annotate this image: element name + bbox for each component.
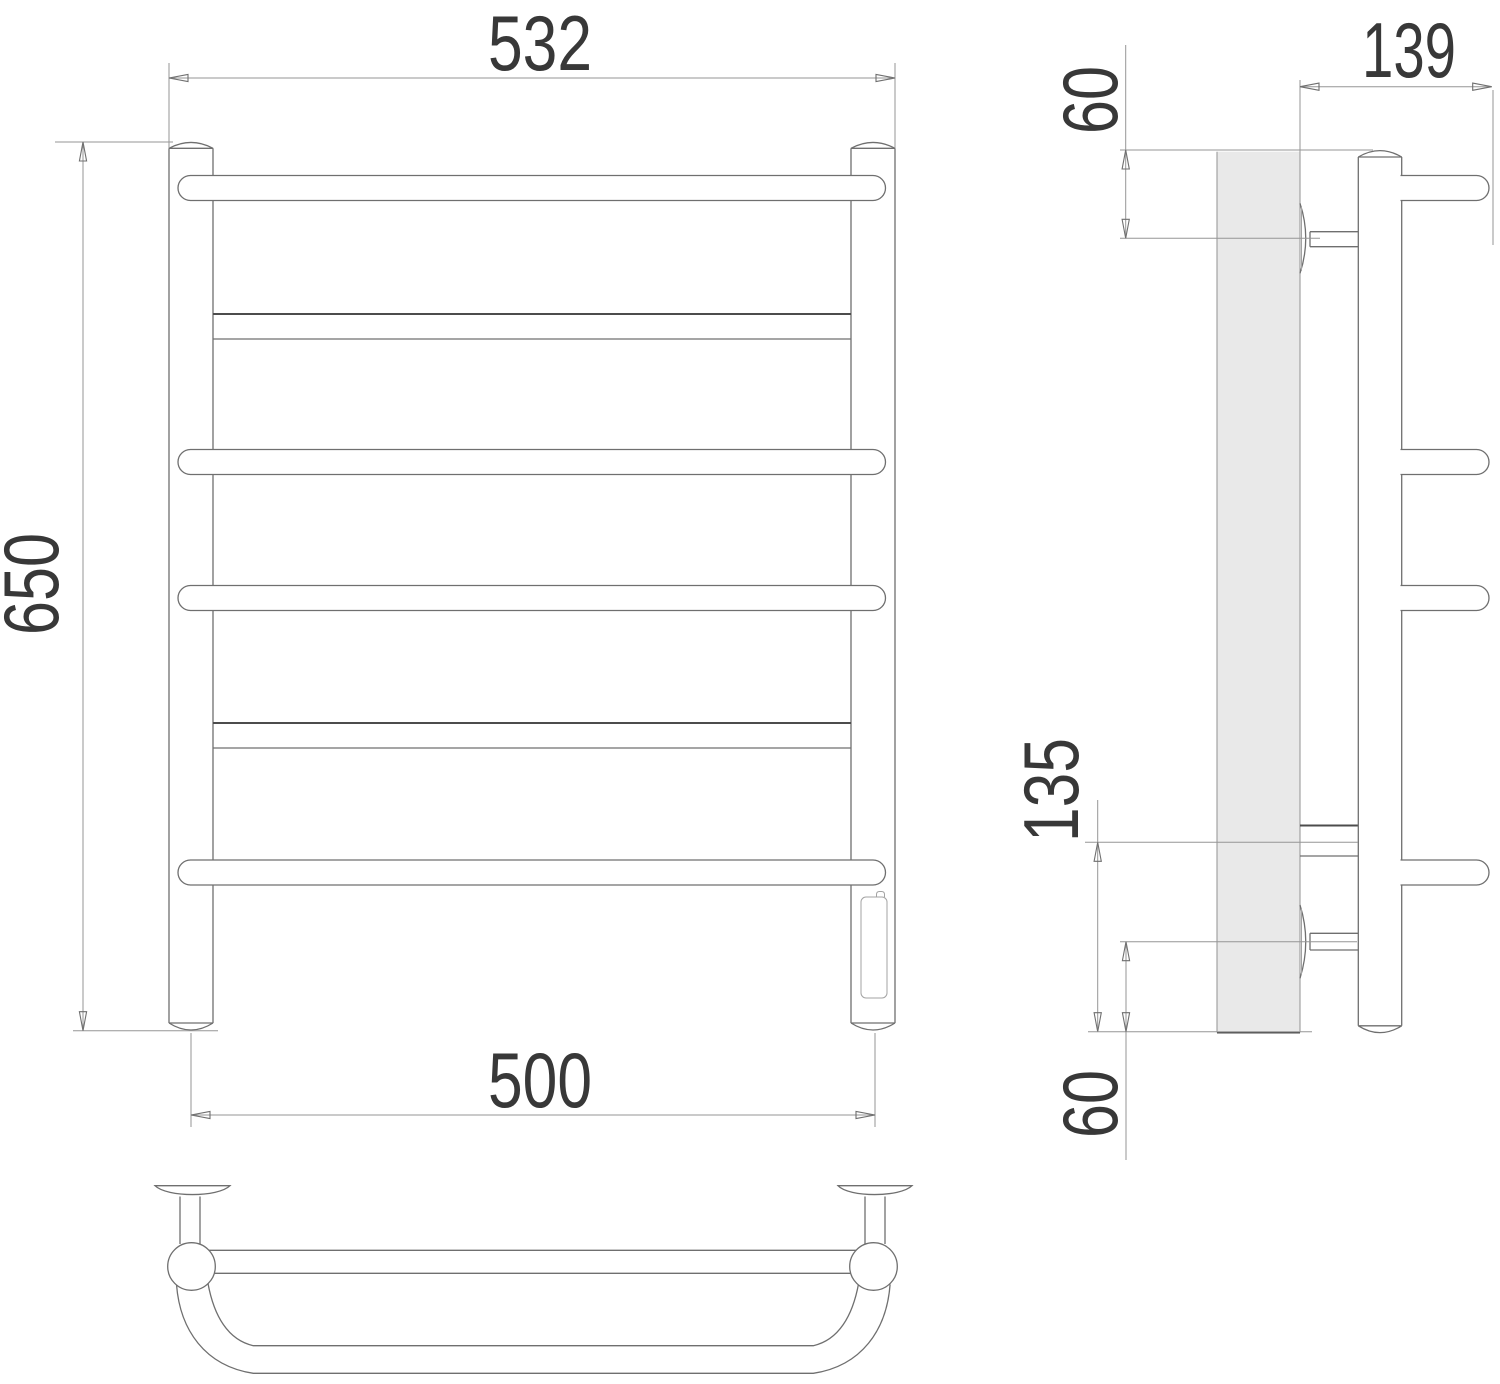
post-bottom-cap [169,1023,213,1030]
towel-rail-technical-drawing: 532 650 500 139 [0,0,1500,1384]
post-top-cap [1358,151,1401,157]
dim-bottom-offset-label: 60 [1046,1070,1134,1138]
element-tab [877,892,885,898]
dim-mounting-width: 500 [191,1033,875,1127]
wall-plate [155,1186,230,1195]
side-rung-3 [1401,450,1490,475]
side-rung-6 [1401,860,1490,885]
side-rung-1 [1401,176,1489,201]
dim-bottom-offset: 60 [1046,942,1357,1160]
dim-mounting-width-label: 500 [488,1036,592,1124]
dim-depth-label: 139 [1362,6,1456,94]
plan-left-post-circle [168,1243,216,1291]
dim-overall-width: 532 [169,0,895,148]
plan-left-bracket [155,1186,230,1244]
dim-top-offset: 60 [1046,45,1373,238]
plan-view [155,1186,912,1374]
plan-right-bracket [838,1186,912,1244]
dim-lower-span-label: 135 [1007,738,1095,842]
front-rungs [178,176,886,886]
rung-3-capsule [178,450,886,475]
front-view [169,142,895,1030]
wall-strip [1217,152,1300,1033]
plan-right-post-circle [850,1243,898,1291]
supply-stub [1300,826,1358,857]
wall-plate [838,1186,912,1195]
dim-lower-span: 135 [1007,738,1358,1032]
post-bottom-cap [1358,1026,1401,1033]
post-top-cap [851,142,895,148]
plan-bowed-rung-inner [208,1284,859,1346]
side-post [1358,151,1401,1033]
side-view [1217,151,1489,1033]
rung-4-capsule [178,586,886,611]
rung-1-capsule [178,176,886,201]
upper-bracket-stem [1310,232,1358,247]
rung-6-capsule [178,860,886,885]
post-top-cap [169,142,213,148]
side-rungs [1401,176,1490,886]
dim-overall-width-label: 532 [488,0,592,87]
post-bottom-cap [851,1023,895,1030]
side-rung-4 [1401,586,1490,611]
dim-top-offset-label: 60 [1046,66,1134,134]
plan-bowed-rung-outer [177,1285,891,1374]
heating-element-outline [861,892,887,999]
dim-overall-height-label: 650 [0,533,75,635]
drawing-canvas: 532 650 500 139 [0,0,1500,1384]
